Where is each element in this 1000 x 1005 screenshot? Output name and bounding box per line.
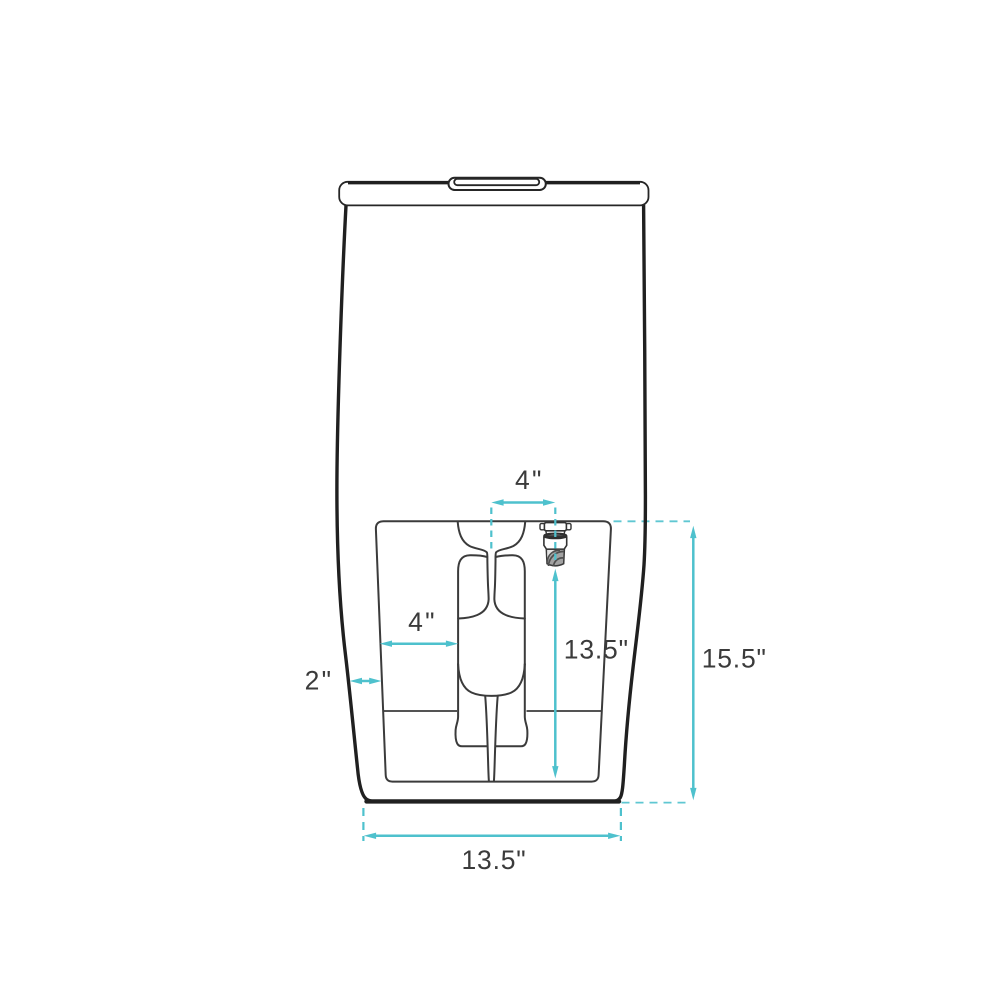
svg-text:15.5": 15.5" (702, 643, 767, 673)
svg-text:13.5": 13.5" (462, 845, 527, 875)
svg-text:2": 2" (305, 666, 334, 696)
svg-text:13.5": 13.5" (564, 634, 629, 664)
svg-text:4": 4" (515, 465, 544, 495)
svg-text:4": 4" (408, 607, 437, 637)
